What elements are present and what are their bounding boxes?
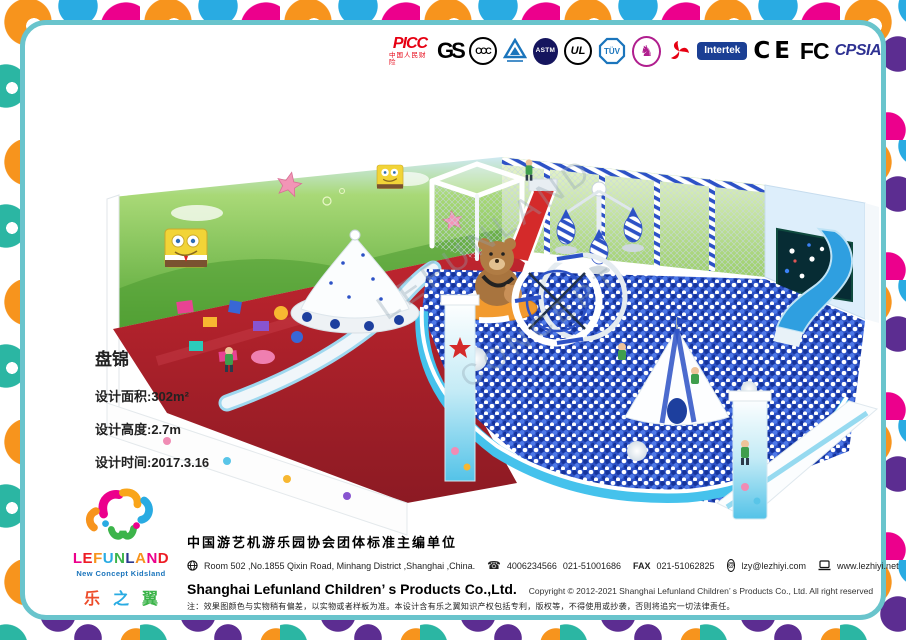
email-address: lzy@lezhiyi.com (741, 561, 806, 571)
picc-logo: PICC 中国人民财险 (389, 36, 431, 66)
certification-strip: PICC 中国人民财险 GS CCC ASTM UL (389, 29, 881, 73)
brand-block: LEFUNLAND New Concept Kidsland 乐 之 翼 (45, 485, 197, 609)
caapa-horse-logo: ♞ (632, 36, 661, 67)
intertek-logo: Intertek (697, 42, 747, 60)
cpsia-mark: CPSIA (835, 43, 881, 59)
company-row: Shanghai Lefunland Children’ s Products … (187, 581, 879, 597)
association-line: 中国游艺机游乐园协会团体标准主编单位 (187, 532, 879, 551)
brand-chinese-name: 乐 之 翼 (45, 585, 197, 609)
company-name: Shanghai Lefunland Children’ s Products … (187, 581, 517, 597)
spongebob-decal-2 (377, 165, 403, 189)
pinwheel-logo (667, 39, 691, 63)
ul-logo: UL (564, 37, 592, 65)
gs-logo: GS (437, 40, 463, 62)
lefunland-logo-mark (81, 485, 161, 543)
fax-label: FAX (633, 561, 651, 571)
disclaimer-note: 注：效果图颜色与实物稍有偏差，以实物或者样板为准。本设计含有乐之翼知识产权包括专… (187, 601, 879, 612)
phone-number-2: 021-51001686 (563, 561, 621, 571)
email-icon: @ (727, 559, 736, 572)
footer: 中国游艺机游乐园协会团体标准主编单位 Room 502 ,No.1855 Qix… (187, 532, 879, 612)
ce-mark: CE (753, 40, 794, 63)
content-sheet: PICC 中国人民财险 GS CCC ASTM UL (20, 20, 886, 620)
contact-row: Room 502 ,No.1855 Qixin Road, Minhang Di… (187, 559, 879, 572)
triangle-cert-icon (503, 38, 527, 64)
fcc-mark: FC (800, 40, 829, 63)
picc-wordmark: PICC (393, 36, 427, 52)
picc-subtext: 中国人民财险 (389, 53, 431, 66)
spongebob-decal (165, 229, 207, 267)
project-height: 设计高度:2.7m (95, 419, 209, 438)
fax-number: 021-51062825 (657, 561, 715, 571)
project-specs: 盘锦 设计面积:302m² 设计高度:2.7m 设计时间:2017.3.16 (95, 345, 209, 485)
ccc-logo: CCC (469, 37, 497, 65)
brand-tagline: New Concept Kidsland (45, 569, 197, 578)
project-title: 盘锦 (95, 345, 209, 370)
lefunland-wordmark: LEFUNLAND (45, 550, 197, 567)
globe-icon (187, 560, 198, 571)
project-area: 设计面积:302m² (95, 386, 209, 405)
astm-logo: ASTM (533, 38, 558, 65)
phone-number-1: 4006234566 (507, 561, 557, 571)
svg-text:TÜV: TÜV (604, 47, 621, 56)
page: PICC 中国人民财险 GS CCC ASTM UL (0, 0, 906, 640)
address: Room 502 ,No.1855 Qixin Road, Minhang Di… (204, 561, 475, 571)
phone-icon: ☎ (487, 559, 501, 572)
tuv-logo: TÜV (598, 37, 626, 65)
website-url: www.lezhiyi.net (837, 561, 899, 571)
laptop-icon (818, 560, 831, 571)
project-date: 设计时间:2017.3.16 (95, 452, 209, 471)
copyright-line: Copyright © 2012-2021 Shanghai Lefunland… (529, 586, 873, 596)
